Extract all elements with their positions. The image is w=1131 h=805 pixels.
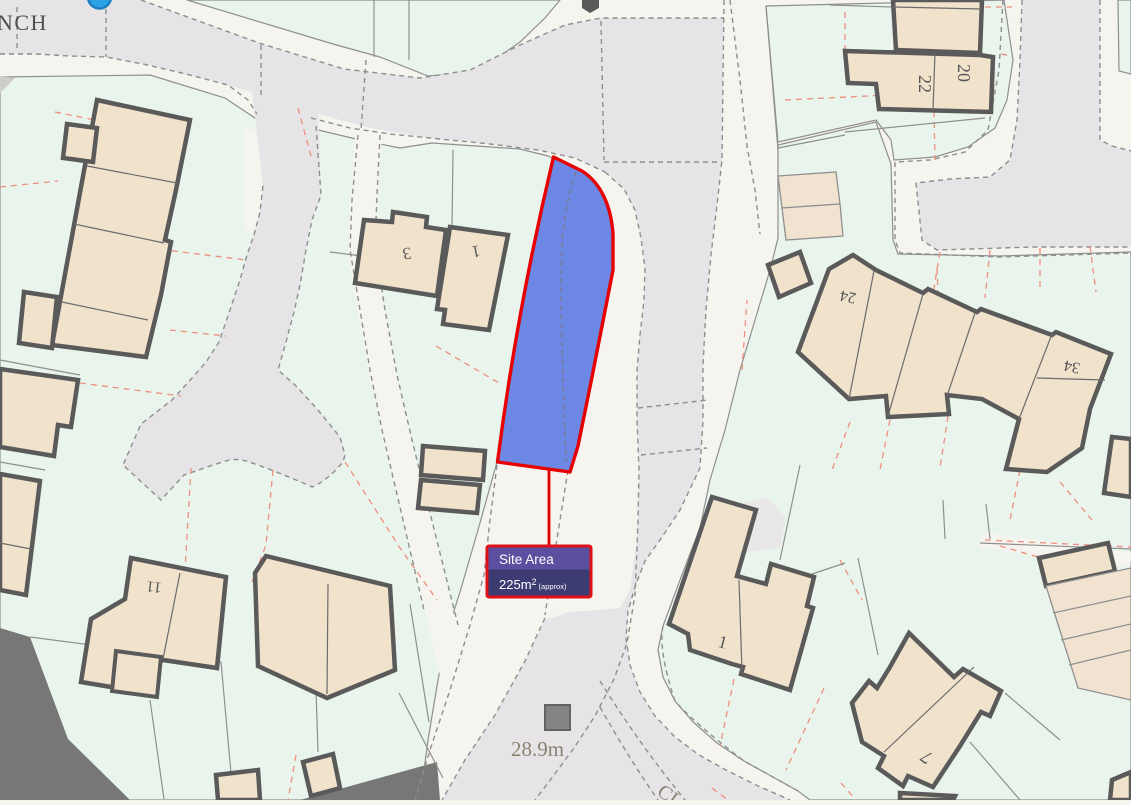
svg-text:NCH: NCH <box>0 10 48 35</box>
svg-text:20: 20 <box>954 64 974 82</box>
svg-text:22: 22 <box>915 75 935 93</box>
svg-text:11: 11 <box>145 577 162 596</box>
svg-text:28.9m: 28.9m <box>511 737 564 761</box>
svg-text:Site Area: Site Area <box>499 552 554 567</box>
